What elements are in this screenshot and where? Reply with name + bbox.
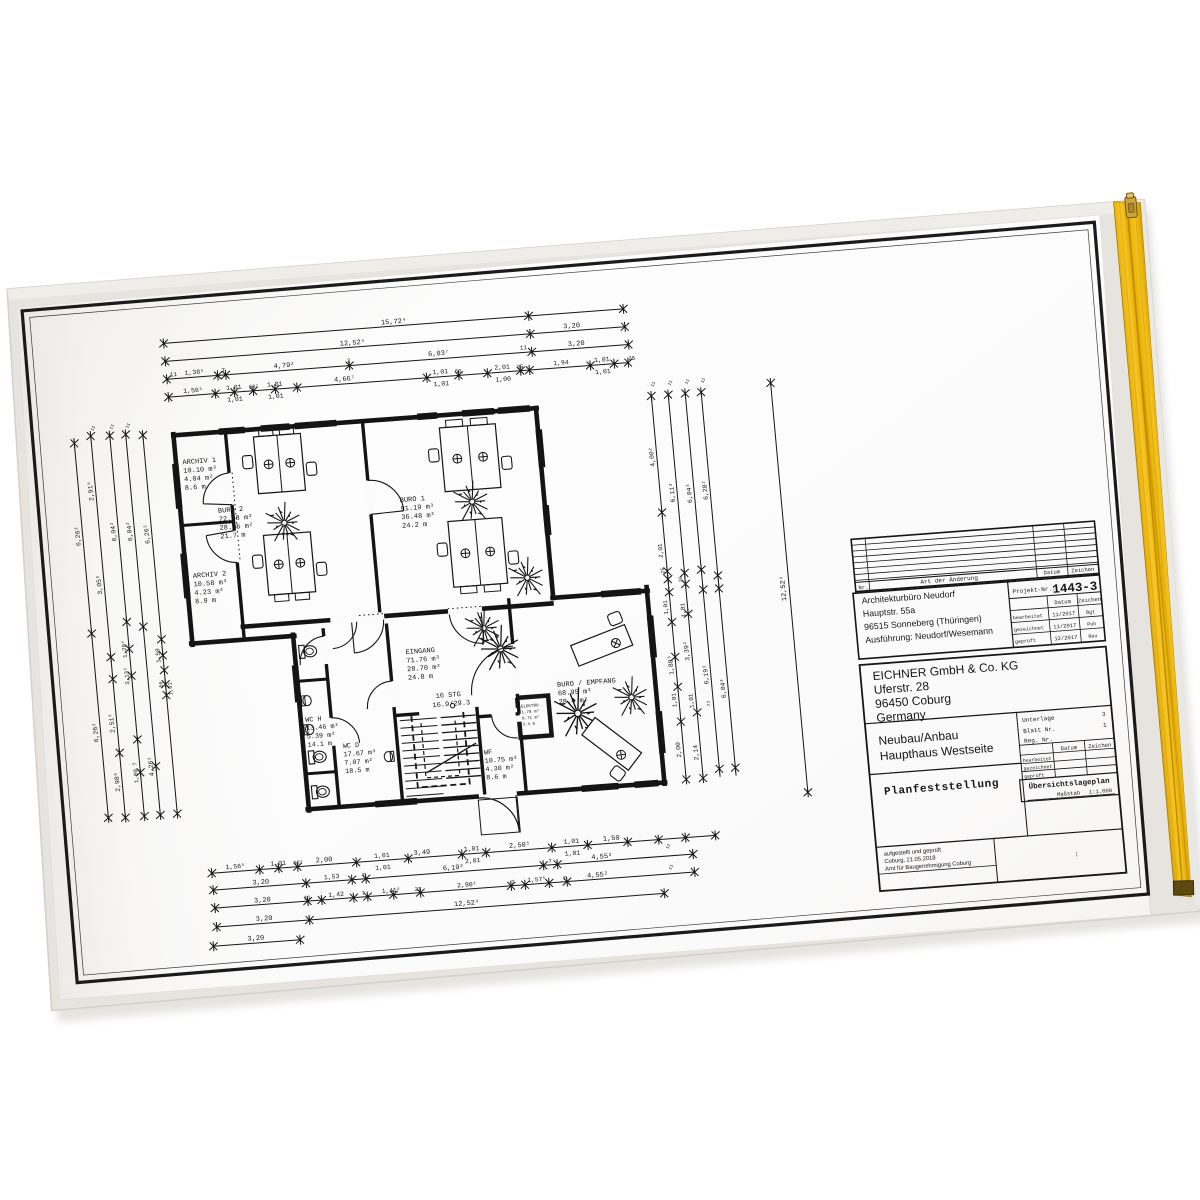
svg-text:1,01: 1,01 — [166, 681, 174, 695]
svg-text:1,01: 1,01 — [226, 384, 242, 392]
svg-text:1,57⁵: 1,57⁵ — [527, 876, 546, 884]
svg-text:3,20: 3,20 — [563, 322, 580, 331]
svg-text:1,01: 1,01 — [679, 602, 687, 617]
svg-text:2,14: 2,14 — [692, 744, 700, 760]
svg-text:8.6 m: 8.6 m — [185, 483, 207, 493]
svg-text:1,01: 1,01 — [687, 693, 695, 708]
svg-text:7: 7 — [361, 890, 365, 897]
svg-text:1,01: 1,01 — [267, 381, 283, 389]
svg-text:3,49: 3,49 — [413, 849, 430, 858]
svg-text:Reu: Reu — [1088, 633, 1098, 640]
svg-text:25: 25 — [628, 355, 635, 362]
svg-text:2,01: 2,01 — [657, 543, 665, 558]
svg-text:8.9 m: 8.9 m — [195, 597, 217, 607]
svg-text:1,56⁵: 1,56⁵ — [183, 387, 203, 395]
svg-text:6,03⁷: 6,03⁷ — [428, 350, 450, 360]
svg-text:1,50: 1,50 — [603, 835, 620, 844]
svg-text:3,20: 3,20 — [254, 896, 271, 905]
svg-text:1,01: 1,01 — [564, 850, 580, 858]
svg-text:3,20: 3,20 — [247, 934, 264, 943]
svg-text:1,38⁵: 1,38⁵ — [184, 368, 204, 376]
svg-text:1,00: 1,00 — [495, 375, 511, 383]
svg-text:77: 77 — [706, 700, 713, 706]
svg-text:7: 7 — [362, 872, 366, 879]
svg-text:50²: 50² — [249, 383, 260, 391]
svg-text:3,20: 3,20 — [568, 340, 585, 349]
svg-text:50: 50 — [455, 368, 462, 375]
svg-text:2,90¹: 2,90¹ — [457, 881, 477, 889]
svg-text:1,01: 1,01 — [594, 356, 610, 364]
svg-text:1,01: 1,01 — [595, 368, 611, 376]
svg-text:2,00: 2,00 — [675, 742, 683, 758]
svg-text:11: 11 — [170, 371, 178, 379]
svg-text:4,55²: 4,55² — [587, 871, 609, 881]
svg-text:1,01: 1,01 — [374, 852, 390, 860]
svg-text:1,01: 1,01 — [268, 393, 284, 401]
svg-text:2,50⁵: 2,50⁵ — [509, 841, 531, 851]
svg-text:1,01: 1,01 — [432, 368, 448, 376]
svg-text:Nr.: Nr. — [858, 584, 869, 592]
svg-text:2,01: 2,01 — [494, 363, 510, 371]
svg-text:1,01: 1,01 — [563, 838, 579, 846]
svg-text:1,01: 1,01 — [227, 396, 243, 404]
svg-text:4,55²: 4,55² — [591, 853, 613, 863]
svg-text:4,66⁷: 4,66⁷ — [334, 375, 356, 385]
svg-text:25: 25 — [517, 363, 524, 370]
svg-text:7: 7 — [511, 879, 515, 886]
svg-text:2,00: 2,00 — [315, 856, 332, 865]
svg-text:7: 7 — [563, 875, 567, 882]
svg-text:1,42: 1,42 — [328, 891, 344, 899]
svg-text:11: 11 — [520, 344, 528, 352]
svg-text:2,01: 2,01 — [465, 857, 481, 865]
svg-text:25: 25 — [660, 567, 667, 573]
svg-text:WF: WF — [484, 749, 493, 758]
svg-text:1,01: 1,01 — [375, 864, 391, 872]
svg-text:1,01: 1,01 — [662, 600, 670, 615]
svg-text::: : — [1074, 851, 1079, 859]
svg-text:Bgt: Bgt — [1086, 609, 1096, 616]
svg-text:Datum: Datum — [1043, 568, 1061, 576]
svg-text:3,20: 3,20 — [252, 878, 269, 887]
svg-text:1,01: 1,01 — [270, 860, 286, 868]
svg-text:1,41⁶: 1,41⁶ — [382, 887, 401, 895]
svg-text:8.6 m: 8.6 m — [486, 773, 507, 782]
svg-text:7: 7 — [548, 858, 552, 865]
svg-text:Puh: Puh — [1087, 621, 1097, 628]
svg-text:1,53: 1,53 — [324, 873, 340, 881]
svg-text:23: 23 — [414, 886, 421, 893]
svg-text:1,56⁵: 1,56⁵ — [225, 863, 245, 871]
svg-text:3,20: 3,20 — [255, 915, 272, 924]
svg-text:4,79²: 4,79² — [273, 362, 295, 372]
svg-text:1,01: 1,01 — [670, 692, 678, 707]
svg-text:6,19²: 6,19² — [443, 864, 465, 874]
svg-text:1,01: 1,01 — [464, 845, 480, 853]
svg-text:36: 36 — [678, 576, 685, 582]
svg-text:1,94: 1,94 — [553, 359, 569, 367]
svg-text:62⁵: 62⁵ — [293, 859, 304, 867]
svg-text:1,50: 1,50 — [154, 648, 162, 663]
svg-text:1,01: 1,01 — [433, 380, 449, 388]
svg-text:50: 50 — [158, 681, 165, 687]
svg-text:Datum: Datum — [1054, 598, 1072, 606]
